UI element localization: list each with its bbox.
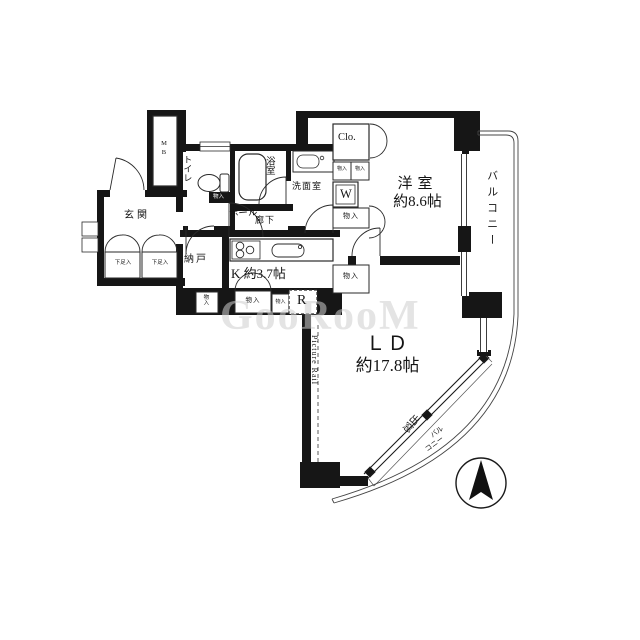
room-label-western-room-size: 約8.6帖 (360, 194, 475, 211)
shoe-box-label: 下足入 (106, 260, 140, 266)
storage-lower-label: 物入 (333, 272, 369, 280)
shoe-box-label: 下足入 (143, 260, 177, 266)
room-label-kitchen: K 約3.7帖 (231, 267, 286, 282)
room-label-washroom: 洗面室 (292, 181, 322, 191)
room-label-toilet: トイレ (182, 155, 192, 182)
bathtub (239, 154, 266, 200)
room-label-living-dining: ＬＤ (325, 333, 450, 356)
room-label-corridor: 廊下 (255, 215, 275, 225)
exterior-box (82, 222, 98, 236)
western-room-door (352, 228, 380, 256)
shoe-box-doors (105, 235, 140, 252)
room-label-bath: 浴室 (263, 156, 274, 175)
vanity-sink (297, 155, 319, 168)
nando-closet-label: 物入 (202, 294, 208, 305)
room-label-balcony: バルコニー (485, 170, 498, 250)
front-door (110, 158, 144, 190)
floor-plan-page: GooRooM 玄関 ホール 廊下 トイレ 浴室 洗面室 納戸 K 約3.7帖 … (0, 0, 640, 640)
picture-rail-label: Picture Rail (310, 335, 319, 385)
kitchen-closet-small-label: 物入 (272, 300, 289, 306)
kitchen-closet-label: 物入 (235, 297, 271, 304)
clo-label: Clo. (338, 132, 356, 144)
storage-upper-label: 物入 (333, 212, 369, 220)
toilet-bowl (198, 175, 220, 192)
room-label-storage-room: 納戸 (184, 254, 208, 266)
tiny-closet-label: 物入 (351, 167, 369, 173)
fridge-label: R (297, 293, 306, 309)
compass-north-icon (456, 458, 506, 508)
room-label-living-dining-size: 約17.8帖 (325, 356, 450, 376)
toilet-shelf-label: 物入 (213, 194, 224, 200)
meter-box-label: MB (160, 140, 167, 158)
tiny-closet-label: 物入 (333, 167, 351, 173)
clo-doors (370, 124, 387, 158)
toilet-tank (220, 174, 229, 192)
washer-label: W (340, 187, 352, 201)
room-label-western-room: 洋室 (360, 176, 475, 193)
washroom-door (305, 205, 333, 233)
exterior-box (82, 238, 98, 252)
shoe-box-doors (142, 235, 177, 252)
room-label-entrance: 玄関 (124, 210, 150, 222)
